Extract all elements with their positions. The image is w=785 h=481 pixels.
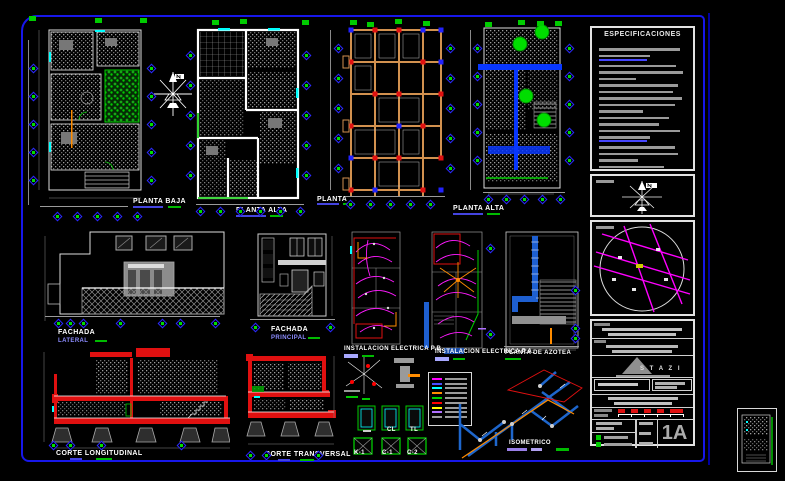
- scale-segment: [631, 409, 638, 413]
- legend-color-line: [432, 411, 442, 413]
- text-bar: [655, 386, 677, 389]
- label-cimentacion: PLANTA: [317, 196, 347, 203]
- label-detail-c2: C-2: [407, 450, 418, 456]
- legend-color-line: [432, 383, 442, 385]
- grid-axis-marker-green: [423, 21, 430, 26]
- scale-text-bar: [487, 213, 500, 215]
- dimension-line: [196, 204, 304, 205]
- scale-tick: [657, 414, 658, 417]
- label-azotea: PLANTA DE AZOTEA: [505, 350, 571, 356]
- sheet-stage: PLANTA BAJA PLANTA ALTA PLANTA PLANTA AL…: [0, 0, 785, 481]
- scale-segment: [670, 409, 683, 413]
- label-detail-cl: CL: [387, 427, 396, 433]
- section-id-bar: [70, 458, 82, 460]
- spec-text-bar: [599, 159, 638, 162]
- spec-text-bar: [599, 166, 664, 169]
- title-block: S T A Z I 1A: [590, 319, 695, 446]
- text-bar: [639, 432, 651, 435]
- grid-axis-marker-green: [240, 19, 247, 24]
- spec-text-bar: [599, 78, 636, 81]
- divider: [592, 432, 636, 433]
- spec-text-bar: [599, 48, 680, 51]
- project-title-bar: [608, 333, 676, 336]
- divider: [592, 394, 693, 395]
- scale-text-bar: [556, 448, 569, 451]
- grid-axis-marker-green: [395, 19, 402, 24]
- dimension-line: [470, 30, 471, 190]
- divider: [592, 338, 693, 339]
- spec-text-bar: [599, 146, 675, 149]
- spec-text-bar: [599, 153, 678, 156]
- scale-text-bar: [308, 337, 320, 339]
- mini-plan-thumbnail: [737, 408, 777, 472]
- sheet-number: 1A: [658, 421, 691, 446]
- legend-color-line: [432, 402, 442, 404]
- scale-segment: [644, 409, 651, 413]
- text-bar: [598, 383, 638, 386]
- drain-pipe: [532, 236, 538, 302]
- corte-transversal-drawing: [238, 348, 338, 460]
- logo-subtitle-bar: [616, 375, 670, 377]
- scale-text-bar: [362, 355, 374, 357]
- legend-color-line: [432, 378, 442, 380]
- cimentacion-drawing: [335, 18, 453, 213]
- scale-tick: [618, 414, 619, 417]
- spec-text-bar: [599, 104, 675, 107]
- windows: [116, 236, 192, 250]
- scale-bar: [344, 354, 358, 358]
- sublabel-lateral: LATERAL: [58, 338, 88, 344]
- scale-bar: [531, 448, 542, 451]
- dimension-line: [40, 206, 128, 207]
- sheet-frame-border-outer: [708, 13, 710, 465]
- spec-text-bar: [599, 136, 650, 139]
- scale-bar: [453, 213, 483, 215]
- label-planta-baja: PLANTA BAJA: [133, 198, 186, 205]
- spec-text-bar: [599, 65, 676, 68]
- divider: [592, 377, 693, 378]
- divider: [592, 355, 693, 356]
- author-cell: [652, 379, 692, 391]
- sublabel-principal: PRINCIPAL: [271, 335, 307, 341]
- scale-bar: [435, 357, 449, 361]
- legend-color-line: [432, 387, 442, 389]
- spec-text-bar: [599, 71, 683, 74]
- text-bar: [639, 442, 653, 445]
- instalacion-electrica-pb-drawing: [344, 228, 410, 350]
- corte-longitudinal-drawing: [38, 346, 230, 458]
- label-fachada-principal: FACHADA: [271, 326, 308, 333]
- dimension-line: [330, 30, 331, 190]
- grid-axis-marker-green: [302, 20, 309, 25]
- blue-duct: [478, 64, 562, 70]
- stairs: [85, 172, 129, 188]
- dimension-line: [483, 192, 565, 193]
- section-id-bar: [278, 459, 290, 461]
- label-planta-alta-2: PLANTA ALTA: [453, 205, 504, 212]
- specifications-box: ESPECIFICACIONES: [590, 26, 695, 171]
- spec-text-bar: [599, 117, 669, 120]
- planta-baja-drawing: [35, 22, 165, 222]
- label-corte-transversal: CORTE TRANSVERSAL: [265, 451, 351, 458]
- dimension-line: [250, 319, 335, 320]
- field-label-bar: [594, 323, 610, 326]
- detail-label-bar: [363, 430, 371, 432]
- specs-lines: [599, 44, 687, 168]
- scale-text-bar: [300, 459, 314, 461]
- key-symbol-green: [596, 435, 601, 440]
- planta-alta-2-drawing: [478, 18, 570, 206]
- label-fachada-lateral: FACHADA: [58, 329, 95, 336]
- spec-text-bar: [599, 110, 643, 113]
- legend-color-line: [432, 397, 442, 399]
- grid-axis-marker-green: [367, 22, 374, 27]
- planta-alta-1-drawing: [188, 18, 313, 218]
- dimension-line: [345, 196, 445, 197]
- graphic-scale-label-bar: [594, 414, 608, 417]
- foundation-blue-columns: [349, 28, 444, 193]
- legend-color-line: [432, 407, 442, 409]
- spec-text-bar: [599, 91, 673, 94]
- text-bar: [596, 427, 614, 430]
- grid-axis-marker-green: [518, 20, 525, 25]
- compass-icon: [592, 178, 693, 216]
- scale-tick: [644, 414, 645, 417]
- specifications-title: ESPECIFICACIONES: [592, 31, 693, 38]
- gray-detail: [394, 358, 420, 388]
- dimension-line: [504, 346, 579, 347]
- text-bar: [596, 422, 622, 425]
- scale-text-bar: [96, 458, 112, 460]
- scale-text-bar: [453, 358, 465, 360]
- text-bar: [604, 436, 628, 439]
- spec-text-bar: [599, 97, 682, 100]
- sheet-content-bar: [614, 402, 672, 405]
- instalacion-electrica-pa-drawing: [420, 228, 492, 363]
- stone-fence: [82, 288, 224, 314]
- grid-axis-marker-green: [537, 21, 544, 26]
- mini-plan-drawing: [738, 409, 776, 471]
- location-map: [592, 222, 693, 314]
- spec-text-bar: [599, 123, 659, 126]
- grid-axis-marker-green: [140, 18, 147, 23]
- spec-underline-bar: [599, 59, 647, 61]
- grid-axis-marker-green: [212, 20, 219, 25]
- grid-axis-marker-green: [95, 18, 102, 23]
- footings: [247, 422, 333, 436]
- foundation-beams: [351, 30, 441, 196]
- address-bar: [612, 350, 672, 353]
- scale-tick: [683, 414, 684, 417]
- scale-baseline: [618, 414, 683, 415]
- fachada-principal-drawing: [246, 228, 338, 330]
- scale-bar: [507, 448, 527, 451]
- legend-color-line: [432, 392, 442, 394]
- location-map-box: [590, 220, 695, 316]
- door: [292, 270, 308, 292]
- label-elec-pb: INSTALACION ELECTRICA P.B.: [344, 346, 443, 352]
- graphic-scale-label-bar: [594, 409, 612, 412]
- text-bar: [655, 382, 685, 385]
- scale-text-bar: [95, 340, 107, 342]
- legend-color-line: [432, 416, 442, 418]
- project-title-bar: [602, 328, 682, 331]
- grid-axis-marker-green: [555, 21, 562, 26]
- scale-text-bar: [505, 358, 521, 360]
- scale-segment: [618, 409, 625, 413]
- footings: [52, 428, 230, 442]
- site-marker: [636, 264, 643, 268]
- grid-axis-marker-green: [485, 22, 492, 27]
- label-corte-longitudinal: CORTE LONGITUDINAL: [56, 450, 143, 457]
- spec-text-bar: [599, 84, 678, 87]
- key-symbol-green: [596, 442, 601, 447]
- scale-bar: [133, 206, 163, 208]
- address-bar: [606, 345, 678, 348]
- label-isometrico: ISOMETRICO: [509, 440, 551, 446]
- north-box: [590, 174, 695, 217]
- label-detail-c1: C-1: [382, 450, 393, 456]
- scale-tick: [631, 414, 632, 417]
- sheet-content-bar: [608, 397, 678, 400]
- label-detail-k1: K-1: [354, 450, 365, 456]
- scale-tick: [670, 414, 671, 417]
- text-bar: [604, 443, 632, 446]
- foundation-red-columns: [349, 28, 444, 193]
- text-bar: [639, 422, 653, 425]
- scale-bar: [317, 203, 339, 205]
- field-label-bar: [594, 340, 606, 343]
- scale-text-bar: [168, 206, 181, 208]
- logo-text: S T A Z I: [640, 366, 682, 372]
- label-detail-tl: TL: [410, 427, 418, 433]
- grid-axis-marker-green: [29, 16, 36, 21]
- garden-patch: [105, 70, 139, 122]
- grid-axis-marker-green: [350, 20, 357, 25]
- north-arrow-icon: [152, 70, 194, 118]
- spec-text-bar: [599, 130, 680, 133]
- scale-segment: [657, 409, 664, 413]
- roof-frame-detail: [346, 356, 382, 394]
- spec-underline-bar: [599, 140, 647, 142]
- divider: [592, 407, 693, 408]
- spec-text-bar: [599, 55, 650, 58]
- dimension-line: [45, 316, 220, 317]
